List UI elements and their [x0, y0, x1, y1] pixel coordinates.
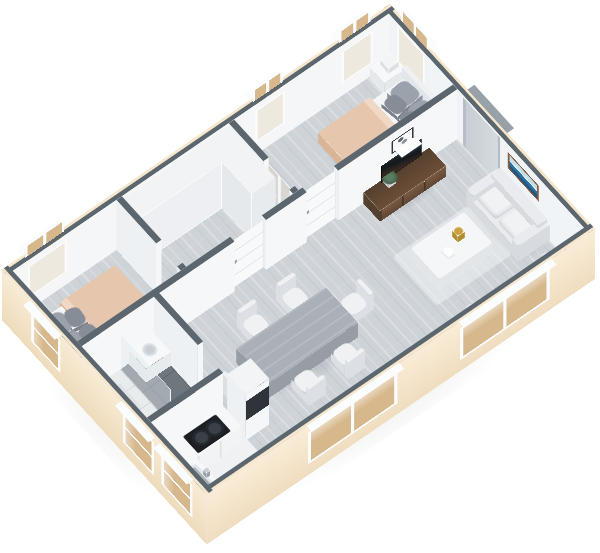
building [2, 54, 596, 545]
dining-chair-back-face [370, 293, 374, 313]
door-handle [307, 210, 309, 215]
floorplan-render [0, 0, 600, 553]
door-handle [234, 259, 236, 264]
